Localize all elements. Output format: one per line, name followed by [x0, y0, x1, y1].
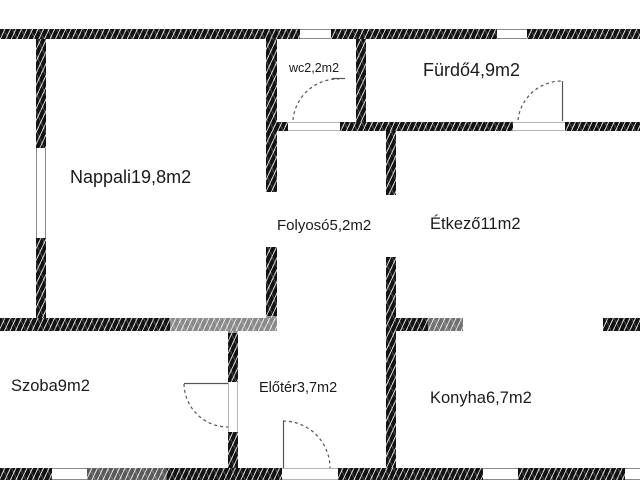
- room-label-nappali: Nappali19,8m2: [70, 167, 191, 188]
- room-label-eloter: Előtér3,7m2: [259, 380, 337, 396]
- wc-door-arc: [293, 79, 339, 120]
- room-label-furdo: Fürdő4,9m2: [423, 60, 520, 81]
- room-label-wc: wc2,2m2: [289, 61, 339, 75]
- room-label-szoba: Szoba9m2: [11, 377, 90, 396]
- furdo-door-arc: [518, 81, 562, 120]
- room-label-konyha: Konyha6,7m2: [430, 389, 532, 408]
- szoba-door-arc: [184, 384, 228, 427]
- room-label-etkezo: Étkező11m2: [430, 215, 521, 234]
- entrance-door-arc: [283, 421, 330, 468]
- floorplan-canvas: Nappali19,8m2 wc2,2m2 Fürdő4,9m2 Folyosó…: [0, 0, 640, 480]
- room-label-folyoso: Folyosó5,2m2: [277, 217, 371, 234]
